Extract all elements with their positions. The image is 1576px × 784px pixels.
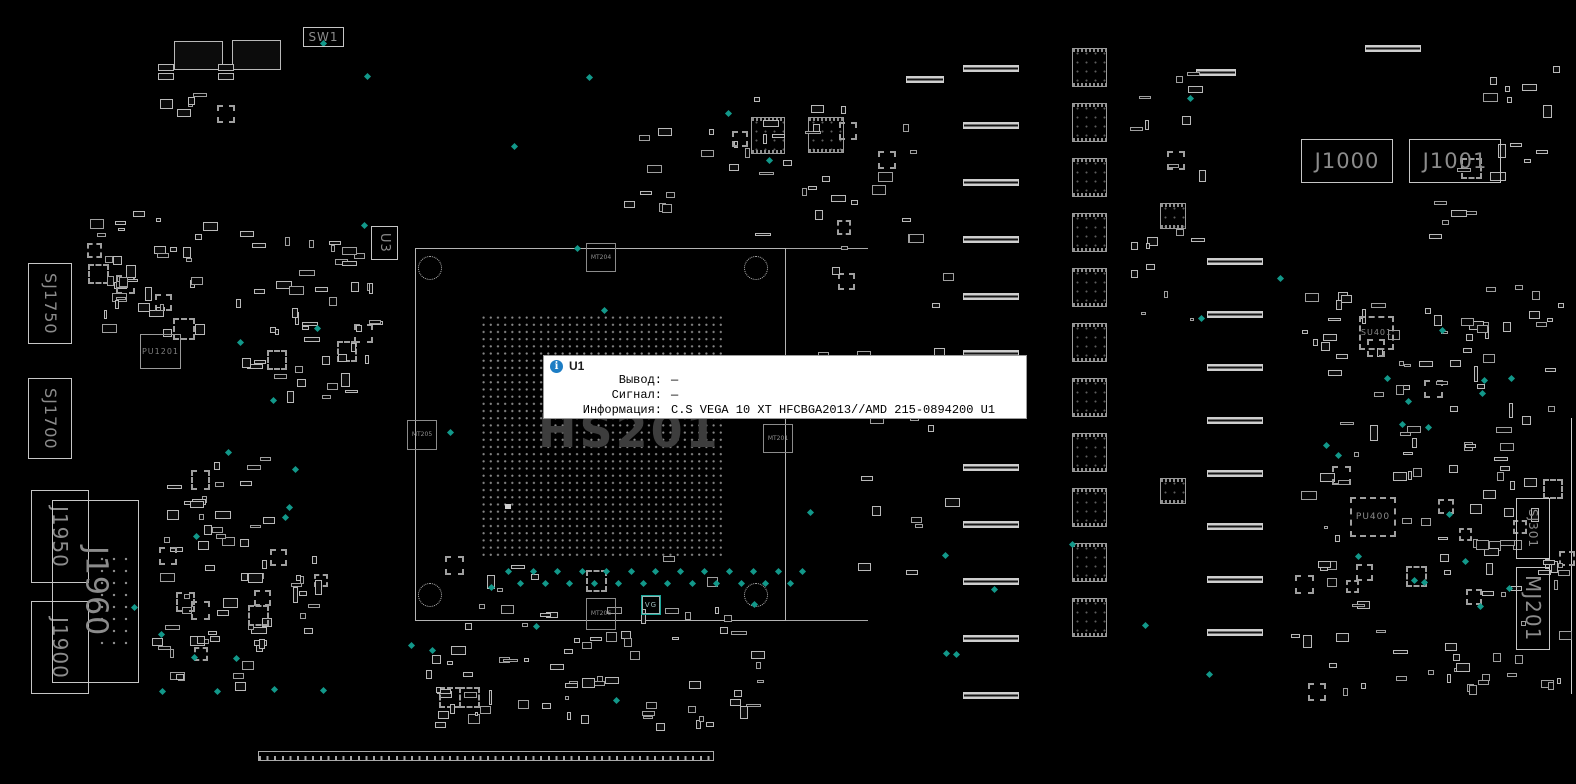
component-sj1700[interactable]: SJ1700 <box>28 378 72 459</box>
passive-component[interactable] <box>1187 72 1200 76</box>
component-j1960[interactable]: J1960 <box>52 500 139 683</box>
passive-component[interactable] <box>300 613 307 620</box>
passive-component[interactable] <box>450 704 456 714</box>
test-point[interactable] <box>1383 375 1390 382</box>
passive-component[interactable] <box>287 391 294 403</box>
passive-component[interactable] <box>464 692 478 698</box>
inductor-bar[interactable] <box>1207 629 1263 636</box>
passive-component[interactable] <box>841 106 846 114</box>
passive-component[interactable] <box>1496 427 1512 433</box>
passive-component[interactable] <box>813 124 820 132</box>
passive-component[interactable] <box>1500 540 1515 546</box>
inductor-bar[interactable] <box>1207 417 1263 424</box>
passive-component[interactable] <box>811 105 824 113</box>
passive-component[interactable] <box>1419 361 1433 367</box>
passive-component[interactable] <box>1403 452 1413 455</box>
passive-component[interactable] <box>312 556 316 564</box>
passive-component[interactable] <box>1374 392 1384 397</box>
passive-component[interactable] <box>1469 685 1477 694</box>
inductor-bar[interactable] <box>963 635 1019 642</box>
passive-component[interactable] <box>574 638 580 643</box>
passive-component[interactable] <box>145 287 152 301</box>
passive-component[interactable] <box>1449 465 1458 473</box>
passive-component[interactable] <box>1442 220 1449 225</box>
passive-component[interactable] <box>1425 308 1431 315</box>
passive-component[interactable] <box>606 632 617 641</box>
passive-component[interactable] <box>262 560 267 570</box>
passive-component[interactable] <box>720 627 727 634</box>
passive-component[interactable] <box>1545 368 1556 372</box>
passive-component[interactable] <box>605 677 619 685</box>
test-point[interactable] <box>1481 377 1488 384</box>
passive-component[interactable] <box>1182 116 1191 125</box>
passive-component[interactable] <box>1434 315 1443 326</box>
ic-footprint[interactable] <box>159 547 177 565</box>
passive-component[interactable] <box>119 277 128 287</box>
passive-component[interactable] <box>1343 688 1347 696</box>
passive-component[interactable] <box>309 240 314 248</box>
connector-footprint[interactable] <box>218 64 234 71</box>
inductor-bar[interactable] <box>1207 470 1263 477</box>
passive-component[interactable] <box>203 222 218 231</box>
passive-component[interactable] <box>1404 364 1411 367</box>
passive-component[interactable] <box>1399 361 1404 367</box>
passive-component[interactable] <box>1522 416 1531 426</box>
passive-component[interactable] <box>757 680 763 683</box>
passive-component[interactable] <box>524 658 529 662</box>
passive-component[interactable] <box>1336 633 1349 642</box>
passive-component[interactable] <box>565 696 569 700</box>
power-stage-module[interactable] <box>1072 598 1107 637</box>
component-j1000[interactable]: J1000 <box>1301 139 1393 183</box>
test-point[interactable] <box>1479 390 1486 397</box>
power-stage-module[interactable] <box>1072 48 1107 87</box>
passive-component[interactable] <box>1470 504 1482 514</box>
passive-component[interactable] <box>1493 653 1500 661</box>
passive-component[interactable] <box>1352 604 1365 607</box>
passive-component[interactable] <box>164 537 170 543</box>
passive-component[interactable] <box>210 636 220 643</box>
passive-component[interactable] <box>197 636 205 644</box>
passive-component[interactable] <box>851 200 858 205</box>
ic-footprint[interactable] <box>270 549 287 566</box>
passive-component[interactable] <box>331 245 336 252</box>
passive-component[interactable] <box>115 221 126 226</box>
test-point[interactable] <box>282 514 289 521</box>
test-point[interactable] <box>1425 424 1432 431</box>
ic-footprint[interactable] <box>191 470 210 489</box>
inductor-bar[interactable] <box>1207 258 1263 265</box>
test-point[interactable] <box>429 647 436 654</box>
passive-component[interactable] <box>755 233 771 236</box>
power-stage-module[interactable] <box>1072 433 1107 472</box>
passive-component[interactable] <box>1421 518 1431 527</box>
passive-component[interactable] <box>342 247 357 255</box>
passive-component[interactable] <box>351 343 356 352</box>
passive-component[interactable] <box>188 97 195 105</box>
passive-component[interactable] <box>341 373 350 387</box>
passive-component[interactable] <box>1188 86 1202 93</box>
passive-component[interactable] <box>1328 318 1341 321</box>
passive-component[interactable] <box>754 97 760 102</box>
passive-component[interactable] <box>263 517 275 524</box>
passive-component[interactable] <box>1510 481 1516 490</box>
ic-footprint[interactable] <box>839 122 857 140</box>
passive-component[interactable] <box>688 706 696 713</box>
passive-component[interactable] <box>1444 570 1451 575</box>
passive-component[interactable] <box>1490 77 1497 85</box>
passive-component[interactable] <box>1434 201 1447 205</box>
passive-component[interactable] <box>1536 150 1548 154</box>
passive-component[interactable] <box>438 711 449 718</box>
passive-component[interactable] <box>1456 663 1470 672</box>
ic-footprint[interactable] <box>1308 683 1326 701</box>
passive-component[interactable] <box>1482 674 1490 681</box>
passive-component[interactable] <box>730 699 741 706</box>
passive-component[interactable] <box>138 303 150 312</box>
test-point[interactable] <box>1277 275 1284 282</box>
passive-component[interactable] <box>1370 425 1379 440</box>
passive-component[interactable] <box>759 172 775 175</box>
passive-component[interactable] <box>1548 406 1556 412</box>
passive-component[interactable] <box>1324 526 1328 529</box>
passive-component[interactable] <box>1361 683 1366 689</box>
test-point[interactable] <box>292 466 299 473</box>
passive-component[interactable] <box>878 172 893 182</box>
passive-component[interactable] <box>932 303 940 308</box>
inductor-bar[interactable] <box>963 293 1019 300</box>
passive-component[interactable] <box>292 308 298 317</box>
passive-component[interactable] <box>1303 635 1312 647</box>
passive-component[interactable] <box>640 191 652 195</box>
passive-component[interactable] <box>302 326 309 330</box>
passive-component[interactable] <box>327 383 338 390</box>
passive-component[interactable] <box>1477 384 1485 390</box>
passive-component[interactable] <box>289 286 304 295</box>
component-sw1[interactable]: SW1 <box>303 27 344 47</box>
passive-component[interactable] <box>451 646 466 655</box>
inductor-bar[interactable] <box>1365 45 1421 52</box>
passive-component[interactable] <box>783 160 792 166</box>
passive-component[interactable] <box>199 514 204 519</box>
passive-component[interactable] <box>943 273 955 281</box>
passive-component[interactable] <box>763 134 768 144</box>
ic-footprint[interactable] <box>248 605 269 626</box>
passive-component[interactable] <box>822 176 830 182</box>
passive-component[interactable] <box>304 628 313 634</box>
passive-component[interactable] <box>102 324 117 333</box>
passive-component[interactable] <box>1553 66 1560 73</box>
passive-component[interactable] <box>1313 339 1318 346</box>
test-point[interactable] <box>233 655 240 662</box>
passive-component[interactable] <box>1536 322 1547 326</box>
inductor-bar[interactable] <box>906 76 944 83</box>
passive-component[interactable] <box>1438 537 1448 540</box>
passive-component[interactable] <box>216 534 226 540</box>
passive-component[interactable] <box>198 541 209 551</box>
ic-footprint[interactable] <box>445 556 465 576</box>
test-point[interactable] <box>159 688 166 695</box>
passive-component[interactable] <box>156 218 162 222</box>
passive-component[interactable] <box>475 712 478 716</box>
passive-component[interactable] <box>223 598 238 607</box>
passive-component[interactable] <box>1445 643 1458 651</box>
passive-component[interactable] <box>1505 86 1510 93</box>
passive-component[interactable] <box>1507 97 1513 104</box>
passive-component[interactable] <box>1396 676 1407 681</box>
ic-footprint[interactable] <box>878 151 896 169</box>
passive-component[interactable] <box>235 682 246 691</box>
passive-component[interactable] <box>1302 330 1308 334</box>
passive-component[interactable] <box>369 283 373 294</box>
passive-component[interactable] <box>160 304 165 311</box>
passive-component[interactable] <box>540 613 550 617</box>
passive-component[interactable] <box>647 165 662 172</box>
passive-component[interactable] <box>208 631 217 635</box>
component-mt205[interactable]: MT205 <box>407 420 437 450</box>
passive-component[interactable] <box>1393 650 1409 654</box>
passive-component[interactable] <box>1320 567 1329 571</box>
power-stage-module[interactable] <box>1160 203 1186 229</box>
passive-component[interactable] <box>590 637 601 641</box>
passive-component[interactable] <box>1494 457 1508 461</box>
passive-component[interactable] <box>167 485 182 489</box>
passive-component[interactable] <box>1483 93 1498 102</box>
passive-component[interactable] <box>503 659 518 662</box>
passive-component[interactable] <box>706 722 714 727</box>
passive-component[interactable] <box>167 510 179 520</box>
passive-component[interactable] <box>582 642 593 648</box>
passive-component[interactable] <box>624 638 632 647</box>
passive-component[interactable] <box>582 678 595 688</box>
passive-component[interactable] <box>1413 468 1422 478</box>
inductor-bar[interactable] <box>963 464 1019 471</box>
passive-component[interactable] <box>329 297 337 305</box>
passive-component[interactable] <box>858 563 871 572</box>
passive-component[interactable] <box>315 580 322 594</box>
passive-component[interactable] <box>165 625 180 630</box>
passive-component[interactable] <box>1412 438 1417 447</box>
passive-component[interactable] <box>285 237 290 246</box>
inductor-bar[interactable] <box>1207 364 1263 371</box>
passive-component[interactable] <box>1504 508 1514 516</box>
passive-component[interactable] <box>906 570 917 574</box>
inductor-bar[interactable] <box>1207 311 1263 318</box>
passive-component[interactable] <box>160 573 174 582</box>
test-point[interactable] <box>799 568 806 575</box>
passive-component[interactable] <box>724 615 733 621</box>
passive-component[interactable] <box>191 277 203 285</box>
ic-footprint[interactable] <box>88 264 109 285</box>
passive-component[interactable] <box>1558 570 1570 576</box>
test-point[interactable] <box>1206 671 1213 678</box>
passive-component[interactable] <box>1305 293 1318 303</box>
passive-component[interactable] <box>909 234 924 244</box>
test-point[interactable] <box>533 623 540 630</box>
ic-footprint[interactable] <box>217 105 235 123</box>
passive-component[interactable] <box>1199 170 1206 182</box>
passive-component[interactable] <box>902 218 911 223</box>
passive-component[interactable] <box>1529 311 1540 319</box>
passive-component[interactable] <box>911 517 921 522</box>
passive-component[interactable] <box>1477 325 1488 333</box>
power-stage-module[interactable] <box>1160 478 1186 504</box>
component-mj201[interactable]: MJ201 <box>1516 567 1550 650</box>
passive-component[interactable] <box>501 605 514 615</box>
passive-component[interactable] <box>90 219 104 229</box>
passive-component[interactable] <box>1451 210 1467 217</box>
passive-component[interactable] <box>489 690 493 706</box>
passive-component[interactable] <box>1524 478 1537 487</box>
boardview-canvas[interactable]: HS201 SW1U3SJ1750SJ1700PU1201J1950J1900J… <box>0 0 1576 784</box>
power-stage-module[interactable] <box>1072 268 1107 307</box>
passive-component[interactable] <box>342 261 357 266</box>
passive-component[interactable] <box>872 185 887 194</box>
test-point[interactable] <box>1355 553 1362 560</box>
passive-component[interactable] <box>184 594 190 599</box>
passive-component[interactable] <box>247 465 261 470</box>
passive-component[interactable] <box>1429 234 1442 239</box>
passive-component[interactable] <box>447 661 453 665</box>
passive-component[interactable] <box>763 120 779 127</box>
passive-component[interactable] <box>1453 654 1459 661</box>
passive-component[interactable] <box>295 366 304 373</box>
passive-component[interactable] <box>1176 76 1183 83</box>
passive-component[interactable] <box>212 527 223 533</box>
passive-component[interactable] <box>746 704 761 707</box>
passive-component[interactable] <box>624 201 635 207</box>
passive-component[interactable] <box>275 329 279 335</box>
passive-component[interactable] <box>299 591 306 596</box>
passive-component[interactable] <box>214 462 220 470</box>
passive-component[interactable] <box>699 716 704 722</box>
test-point[interactable] <box>225 449 232 456</box>
passive-component[interactable] <box>831 195 846 202</box>
test-point[interactable] <box>364 73 371 80</box>
test-point[interactable] <box>586 74 593 81</box>
passive-component[interactable] <box>630 651 640 660</box>
passive-component[interactable] <box>1558 563 1564 568</box>
passive-component[interactable] <box>658 128 672 135</box>
passive-component[interactable] <box>1141 312 1146 316</box>
inductor-bar[interactable] <box>963 521 1019 528</box>
passive-component[interactable] <box>432 655 441 664</box>
test-point[interactable] <box>408 642 415 649</box>
passive-component[interactable] <box>1547 318 1553 323</box>
passive-component[interactable] <box>177 109 191 118</box>
passive-component[interactable] <box>1507 673 1517 677</box>
ic-footprint[interactable] <box>732 131 748 147</box>
passive-component[interactable] <box>1476 540 1489 550</box>
passive-component[interactable] <box>127 279 138 282</box>
component-sj1750[interactable]: SJ1750 <box>28 263 72 344</box>
passive-component[interactable] <box>550 664 564 670</box>
passive-component[interactable] <box>1478 680 1490 685</box>
power-stage-module[interactable] <box>1072 213 1107 252</box>
passive-component[interactable] <box>260 457 272 461</box>
passive-component[interactable] <box>215 511 230 520</box>
passive-component[interactable] <box>1440 554 1449 563</box>
ic-footprint[interactable] <box>1543 479 1564 500</box>
passive-component[interactable] <box>186 258 192 262</box>
passive-component[interactable] <box>104 310 107 320</box>
test-point[interactable] <box>1187 95 1194 102</box>
passive-component[interactable] <box>715 607 719 614</box>
passive-component[interactable] <box>205 565 215 571</box>
passive-component[interactable] <box>248 573 262 583</box>
inductor-bar[interactable] <box>963 236 1019 243</box>
test-point[interactable] <box>193 533 200 540</box>
passive-component[interactable] <box>522 623 528 627</box>
test-point[interactable] <box>786 580 793 587</box>
passive-component[interactable] <box>1483 490 1497 499</box>
passive-component[interactable] <box>872 506 881 515</box>
passive-component[interactable] <box>663 556 675 562</box>
passive-component[interactable] <box>772 134 785 138</box>
passive-component[interactable] <box>685 612 691 620</box>
ic-footprint[interactable] <box>837 220 852 235</box>
passive-component[interactable] <box>240 539 249 547</box>
passive-component[interactable] <box>426 670 432 679</box>
passive-component[interactable] <box>709 129 714 135</box>
passive-component[interactable] <box>1139 96 1151 99</box>
passive-component[interactable] <box>176 674 184 680</box>
passive-component[interactable] <box>1486 563 1494 575</box>
passive-component[interactable] <box>195 234 203 241</box>
passive-component[interactable] <box>252 243 266 248</box>
ic-footprint[interactable] <box>1346 580 1359 593</box>
passive-component[interactable] <box>1146 264 1154 270</box>
passive-component[interactable] <box>356 325 363 332</box>
ic-footprint[interactable] <box>1295 575 1314 594</box>
passive-component[interactable] <box>1340 422 1355 425</box>
passive-component[interactable] <box>369 320 381 324</box>
passive-component[interactable] <box>1463 348 1471 353</box>
passive-component[interactable] <box>365 355 370 364</box>
passive-component[interactable] <box>1509 403 1513 419</box>
test-point[interactable] <box>613 697 620 704</box>
passive-component[interactable] <box>808 186 816 190</box>
passive-component[interactable] <box>1354 452 1360 457</box>
test-point[interactable] <box>991 586 998 593</box>
passive-component[interactable] <box>1130 127 1143 130</box>
passive-component[interactable] <box>107 276 114 286</box>
inductor-bar[interactable] <box>963 578 1019 585</box>
passive-component[interactable] <box>1291 634 1300 637</box>
passive-component[interactable] <box>643 716 654 720</box>
passive-component[interactable] <box>1548 682 1554 689</box>
connector-footprint[interactable] <box>232 40 281 70</box>
test-point[interactable] <box>943 650 950 657</box>
passive-component[interactable] <box>542 703 551 709</box>
passive-component[interactable] <box>152 638 163 646</box>
test-point[interactable] <box>1477 603 1484 610</box>
passive-component[interactable] <box>1131 242 1138 250</box>
passive-component[interactable] <box>945 498 960 507</box>
passive-component[interactable] <box>531 574 539 580</box>
passive-component[interactable] <box>1497 472 1504 481</box>
passive-component[interactable] <box>351 282 360 292</box>
connector-footprint[interactable] <box>158 73 174 80</box>
passive-component[interactable] <box>1145 120 1149 130</box>
passive-component[interactable] <box>1558 303 1564 308</box>
passive-component[interactable] <box>215 482 224 487</box>
passive-component[interactable] <box>751 651 765 658</box>
test-point[interactable] <box>237 339 244 346</box>
passive-component[interactable] <box>656 723 665 731</box>
passive-component[interactable] <box>1323 334 1337 341</box>
passive-component[interactable] <box>463 672 473 677</box>
